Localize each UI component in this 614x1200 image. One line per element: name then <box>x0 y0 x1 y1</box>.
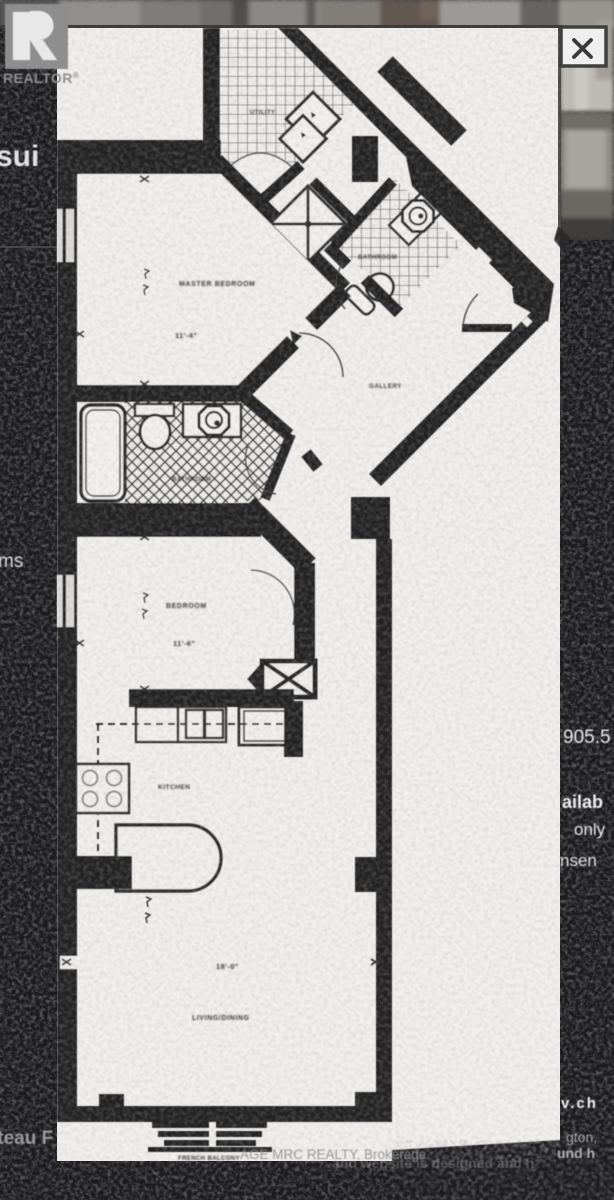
svg-text:nsen: nsen <box>560 851 597 870</box>
svg-text:only: only <box>574 820 606 839</box>
svg-text:gton,: gton, <box>566 1129 597 1145</box>
svg-text:905.5: 905.5 <box>563 727 611 748</box>
svg-text:v.ch: v.ch <box>561 1095 598 1112</box>
svg-text:iteau F: iteau F <box>0 1128 53 1149</box>
svg-text:sui: sui <box>0 140 39 173</box>
svg-text:ms: ms <box>0 551 23 572</box>
svg-text:ailab: ailab <box>562 792 603 812</box>
svg-text:REALTOR®: REALTOR® <box>3 70 79 86</box>
svg-text:and website is designed and h: and website is designed and h <box>332 1155 534 1171</box>
svg-text:und h: und h <box>557 1145 595 1161</box>
